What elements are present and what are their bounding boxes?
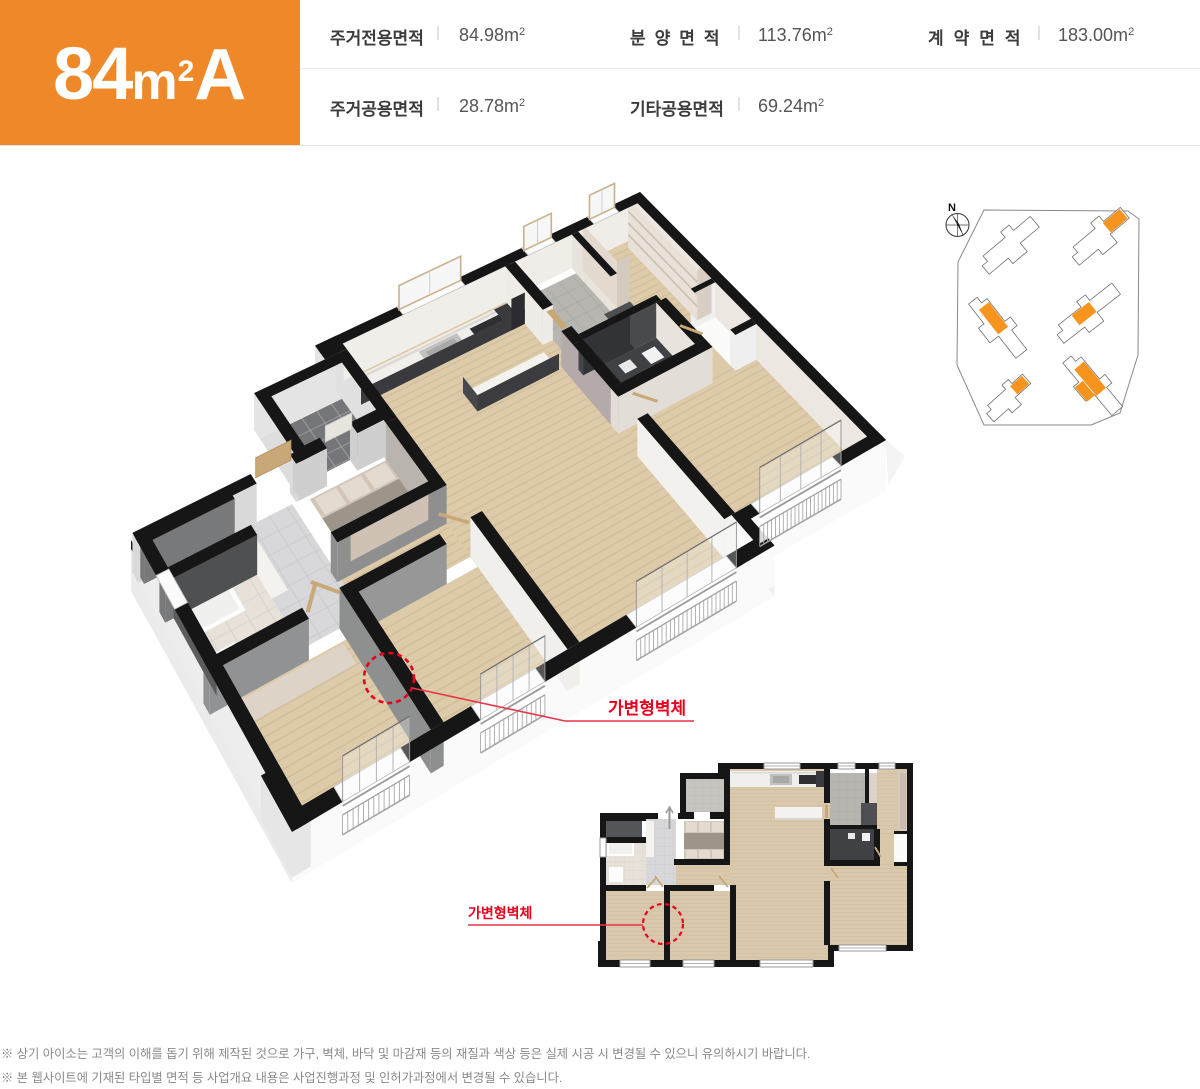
svg-text:가변형벽체: 가변형벽체: [468, 905, 532, 921]
svg-text:N: N: [948, 202, 956, 214]
svg-text:가변형벽체: 가변형벽체: [608, 698, 686, 718]
